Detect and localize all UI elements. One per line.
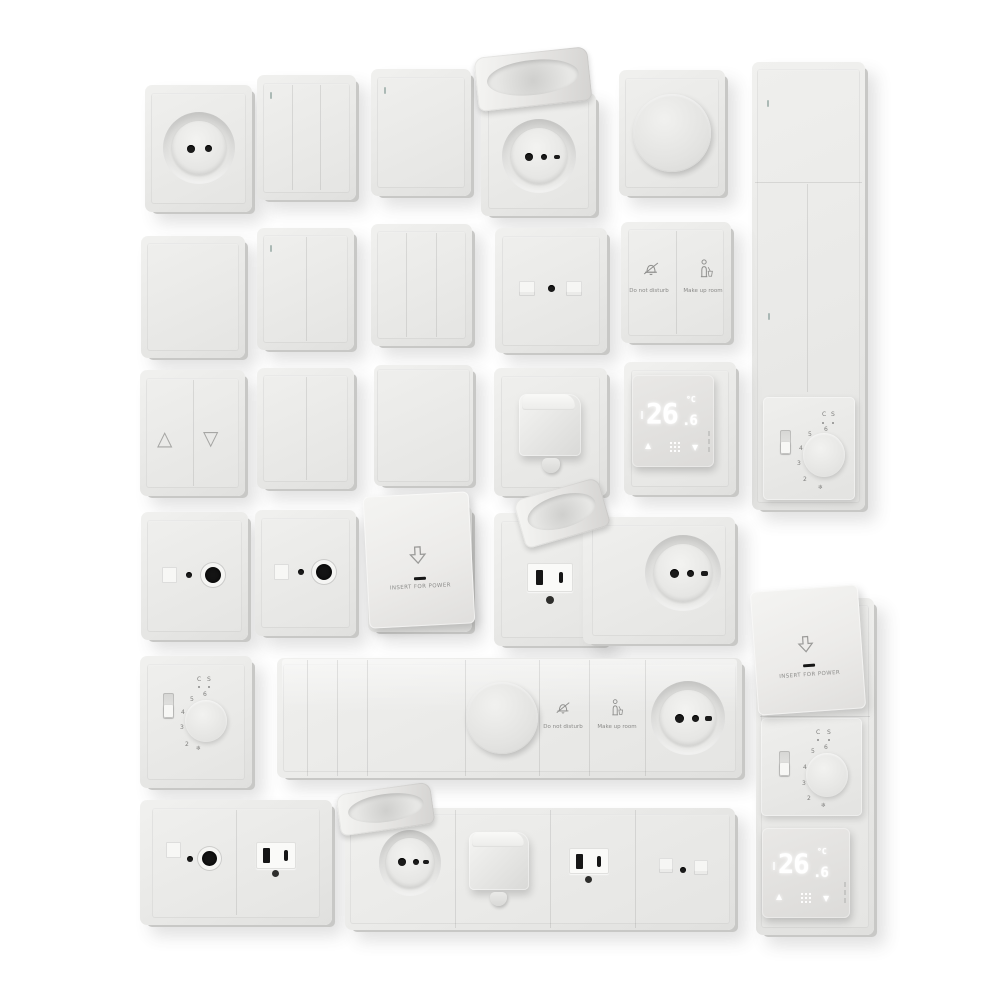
- rocker-divider: [406, 233, 407, 336]
- rocker-divider: [193, 380, 194, 487]
- frost-icon: ❄: [818, 485, 823, 491]
- side-indicator: [708, 431, 710, 436]
- dial-scale-4: 4: [799, 446, 803, 452]
- outlet-recess: [256, 842, 296, 869]
- menu-dots-icon: [669, 441, 680, 452]
- status-led: [270, 245, 272, 252]
- dial-scale-4: 4: [803, 765, 807, 771]
- outlet-slot-neutral: [576, 854, 583, 869]
- dimmer: [619, 70, 725, 196]
- keycard-cover: INSERT FOR POWER: [750, 584, 866, 715]
- dial-scale-2: 2: [803, 477, 807, 483]
- socket-data-dual: [495, 228, 607, 353]
- switch-2gang: [257, 368, 354, 489]
- center-hole: [187, 856, 193, 862]
- unit-divider: [635, 810, 636, 927]
- keycard-cover: INSERT FOR POWER: [363, 491, 476, 628]
- thermostat-toggle: [779, 751, 790, 777]
- socket-recess: [502, 119, 576, 193]
- thermostat-dial: [803, 433, 845, 477]
- plate-face: [263, 235, 348, 342]
- mode-dot: [828, 739, 830, 741]
- unit-divider: [589, 660, 590, 775]
- socket-recess: [651, 681, 725, 755]
- temp-down-icon: ▼: [692, 443, 698, 452]
- lid-inner: [346, 789, 425, 827]
- thermostat-digital-module: 26 .6 °C ▲ ▼: [762, 828, 850, 918]
- hotel-service-switch: Do not disturb Make up room: [621, 222, 731, 343]
- status-led: [767, 100, 769, 107]
- side-indicator: [844, 890, 846, 895]
- button-label: Make up room: [683, 288, 723, 295]
- status-led: [384, 87, 386, 94]
- mode-label-c: C: [822, 412, 826, 418]
- dimmer-knob: [466, 682, 538, 754]
- dial-scale-3: 3: [802, 781, 806, 787]
- dimmer-knob: [633, 94, 711, 172]
- mode-label-s: S: [831, 412, 835, 418]
- media-port: [166, 842, 181, 858]
- shutter-down-icon: ▽: [203, 428, 218, 448]
- switch-1gang: [371, 69, 471, 196]
- frost-icon: ❄: [196, 746, 201, 752]
- rocker-divider: [306, 237, 307, 340]
- mode-dot: [822, 422, 824, 424]
- thermostat-digital: 26 .6 °C ▲ ▼: [624, 362, 736, 495]
- card-slot: [803, 664, 815, 668]
- coax-connector: [198, 847, 221, 870]
- temp-down-icon: ▼: [823, 894, 829, 903]
- pin-hole: [413, 859, 419, 865]
- data-port: [694, 860, 708, 875]
- rocker-divider: [320, 85, 321, 191]
- pin-slot: [423, 860, 429, 864]
- dial-scale-5: 5: [190, 697, 194, 703]
- switch-2gang: [257, 228, 354, 350]
- plate-face: [263, 83, 350, 193]
- hooded-outlet: [494, 368, 607, 496]
- plate-face: [377, 369, 470, 483]
- outlet-recess: [527, 563, 573, 592]
- insert-label: INSERT FOR POWER: [367, 581, 473, 593]
- mode-label-s: S: [207, 677, 211, 683]
- thermostat-analog-single: C S 6 5 4 3 2 ❄: [140, 656, 252, 788]
- button-divider: [676, 231, 677, 333]
- status-led: [270, 92, 272, 99]
- switch-1gang-frameless: [374, 365, 473, 486]
- render-canvas: C S 6 5 4 3 2 ❄: [0, 0, 1000, 1000]
- shutter-switch: △ ▽: [140, 370, 245, 496]
- data-port: [659, 858, 673, 873]
- unit-divider: [236, 810, 237, 916]
- mode-label-s: S: [827, 730, 831, 736]
- frost-icon: ❄: [821, 803, 826, 809]
- dial-scale-2: 2: [185, 742, 189, 748]
- center-hole: [298, 569, 304, 575]
- double-plate-tv-us: [140, 800, 332, 925]
- temperature-decimal: .6: [682, 413, 697, 429]
- socket-recess: [645, 535, 721, 611]
- socket-inner: [172, 121, 227, 176]
- side-indicator: [844, 898, 846, 903]
- coax-connector: [201, 563, 225, 587]
- pin-hole: [205, 145, 212, 152]
- center-hole: [548, 285, 555, 292]
- side-indicator: [708, 439, 710, 444]
- socket-schuko-lidded: [583, 517, 735, 644]
- do-not-disturb-icon: [553, 698, 573, 722]
- thermostat-dial: [806, 753, 848, 797]
- unit-divider: [367, 660, 368, 775]
- pin-hole: [398, 858, 406, 866]
- center-hole: [186, 572, 192, 578]
- status-led: [768, 313, 770, 320]
- mode-dot: [198, 686, 200, 688]
- thermostat-toggle: [780, 430, 791, 455]
- outlet-ground-hole: [272, 870, 279, 877]
- pin-slot: [701, 571, 708, 576]
- dial-scale-4: 4: [181, 710, 185, 716]
- outlet-slot-neutral: [536, 570, 543, 585]
- unit-divider: [755, 182, 861, 183]
- dial-scale-5: 5: [811, 749, 815, 755]
- unit-divider: [645, 660, 646, 775]
- pin-hole: [525, 153, 533, 161]
- temperature-decimal: .6: [813, 865, 828, 881]
- pin-slot: [554, 155, 560, 159]
- socket-schuko: [145, 85, 252, 212]
- outlet-slot-hot: [284, 850, 288, 861]
- button-label: Make up room: [597, 724, 637, 731]
- temperature-value: 26: [646, 397, 678, 430]
- center-hole: [680, 867, 686, 873]
- mode-label-c: C: [197, 677, 201, 683]
- insert-card-icon: [404, 541, 432, 572]
- side-indicator: [708, 447, 710, 452]
- dial-scale-6: 6: [203, 692, 207, 698]
- make-up-room-icon: [607, 697, 625, 722]
- plate-face: [263, 375, 348, 482]
- outlet-ground-hole: [585, 876, 592, 883]
- do-not-disturb-icon: [640, 258, 662, 284]
- keycard-switch: INSERT FOR POWER: [368, 506, 472, 632]
- toggle-knob: [780, 763, 789, 775]
- temperature-unit: °C: [817, 847, 827, 856]
- mode-dot: [817, 739, 819, 741]
- switch-3gang: [257, 75, 356, 200]
- pin-hole: [541, 154, 547, 160]
- toggle-knob: [781, 442, 790, 453]
- unit-divider: [550, 810, 551, 927]
- temperature-unit: °C: [686, 395, 696, 404]
- switch-3gang: [371, 224, 472, 346]
- mode-indicator: [641, 411, 643, 419]
- menu-dots-icon: [800, 892, 811, 903]
- unit-divider: [760, 716, 871, 717]
- socket-tv-sat: [255, 510, 356, 636]
- socket-tv-sat: [141, 512, 248, 640]
- toggle-knob: [164, 705, 173, 717]
- dial-scale-6: 6: [824, 745, 828, 751]
- rocker-divider: [807, 184, 808, 392]
- dial-scale-3: 3: [797, 461, 801, 467]
- outlet-slot-hot: [559, 572, 563, 583]
- rocker-divider: [292, 85, 293, 191]
- media-port: [274, 564, 289, 580]
- plate-face: [377, 77, 465, 189]
- thermostat-toggle: [163, 693, 174, 719]
- data-port: [519, 281, 535, 296]
- unit-divider: [539, 660, 540, 775]
- socket-recess: [163, 112, 235, 184]
- lid-inner: [523, 486, 600, 537]
- thermostat-module: 26 .6 °C ▲ ▼: [632, 375, 714, 467]
- pin-hole: [675, 714, 684, 723]
- outlet-slot-neutral: [263, 848, 270, 863]
- thermostat-dial: [185, 700, 227, 742]
- vertical-multiframe-2: INSERT FOR POWER C S 6 5 4 3 2 ❄ 26 .6 °…: [756, 598, 874, 935]
- pin-hole: [687, 570, 694, 577]
- horizontal-multiframe-1: Do not disturb Make up room: [277, 658, 742, 778]
- button-label: Do not disturb: [543, 724, 583, 731]
- outlet-slot-hot: [597, 856, 601, 867]
- dial-scale-5: 5: [808, 432, 812, 438]
- insert-label: INSERT FOR POWER: [756, 668, 864, 682]
- pin-slot: [705, 716, 712, 721]
- outlet-ground-hole: [546, 596, 554, 604]
- thermostat-analog: C S 6 5 4 3 2 ❄: [763, 397, 855, 500]
- plate-face: [147, 243, 239, 350]
- dial-scale-2: 2: [807, 796, 811, 802]
- outlet-hood: [519, 394, 581, 456]
- temp-up-icon: ▲: [645, 441, 651, 450]
- pin-hole: [187, 145, 195, 153]
- thermostat-analog: C S 6 5 4 3 2 ❄: [761, 718, 862, 816]
- card-slot: [414, 577, 426, 581]
- blank-plate: [141, 236, 245, 358]
- dial-scale-6: 6: [824, 427, 828, 433]
- mode-dot: [832, 422, 834, 424]
- shutter-up-icon: △: [157, 428, 172, 448]
- lid-inner: [486, 55, 580, 100]
- socket-schuko-lidded: [481, 93, 596, 216]
- dial-scale-3: 3: [180, 725, 184, 731]
- socket-recess: [379, 830, 441, 896]
- unit-divider: [455, 810, 456, 927]
- mode-indicator: [773, 862, 775, 870]
- hood-top: [472, 832, 524, 847]
- outlet-recess: [569, 848, 609, 874]
- vertical-multiframe-1: C S 6 5 4 3 2 ❄: [752, 62, 865, 510]
- plate-face: [377, 231, 466, 338]
- mode-dot: [208, 686, 210, 688]
- make-up-room-icon: [695, 257, 715, 284]
- coax-connector: [312, 560, 336, 584]
- side-indicator: [844, 882, 846, 887]
- hood-top: [522, 394, 575, 410]
- pin-hole: [670, 569, 679, 578]
- rocker-divider: [306, 377, 307, 479]
- button-label: Do not disturb: [629, 288, 669, 295]
- mode-label-c: C: [816, 730, 820, 736]
- pin-hole: [692, 715, 699, 722]
- media-port: [162, 567, 177, 583]
- insert-card-icon: [793, 631, 819, 661]
- unit-divider: [307, 660, 308, 775]
- temp-up-icon: ▲: [776, 892, 782, 901]
- outlet-hood: [469, 832, 529, 890]
- unit-divider: [337, 660, 338, 775]
- rocker-divider: [436, 233, 437, 336]
- temperature-value: 26: [778, 849, 809, 880]
- data-port: [566, 281, 582, 296]
